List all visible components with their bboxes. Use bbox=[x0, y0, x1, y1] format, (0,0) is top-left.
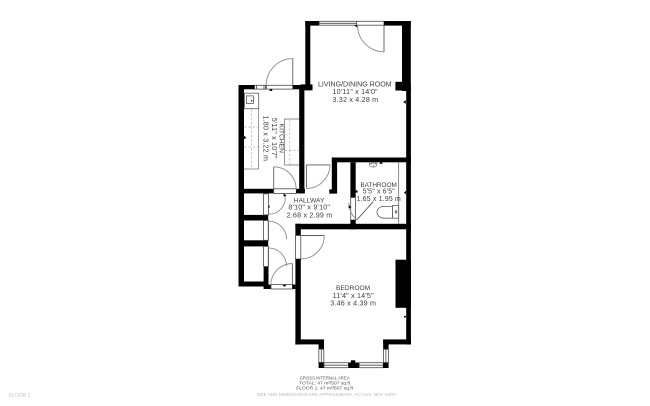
svg-text:3.46 x 4.39 m: 3.46 x 4.39 m bbox=[330, 300, 376, 308]
svg-text:2.68 x 2.99 m: 2.68 x 2.99 m bbox=[287, 212, 333, 220]
svg-text:1.65 x 1.95 m: 1.65 x 1.95 m bbox=[357, 196, 401, 203]
svg-text:SIZE AND DIMENSIONS ARE APPROX: SIZE AND DIMENSIONS ARE APPROXIMATE, ACT… bbox=[256, 392, 396, 397]
svg-text:3.32 x 4.28 m: 3.32 x 4.28 m bbox=[332, 96, 378, 104]
svg-text:FLOOR 1: FLOOR 1 bbox=[9, 393, 31, 399]
svg-text:GROSS INTERNAL AREA: GROSS INTERNAL AREA bbox=[300, 375, 350, 380]
svg-text:8'10" x 9'10": 8'10" x 9'10" bbox=[288, 204, 330, 212]
svg-text:1.80 x 3.22 m: 1.80 x 3.22 m bbox=[261, 116, 269, 162]
svg-text:5'11" x 10'7": 5'11" x 10'7" bbox=[270, 118, 278, 159]
svg-text:BEDROOM: BEDROOM bbox=[336, 285, 370, 292]
svg-text:FLOOR 1: 47 m²/507 sq.ft: FLOOR 1: 47 m²/507 sq.ft bbox=[296, 385, 353, 391]
svg-text:5'5" x 6'5": 5'5" x 6'5" bbox=[363, 189, 396, 196]
